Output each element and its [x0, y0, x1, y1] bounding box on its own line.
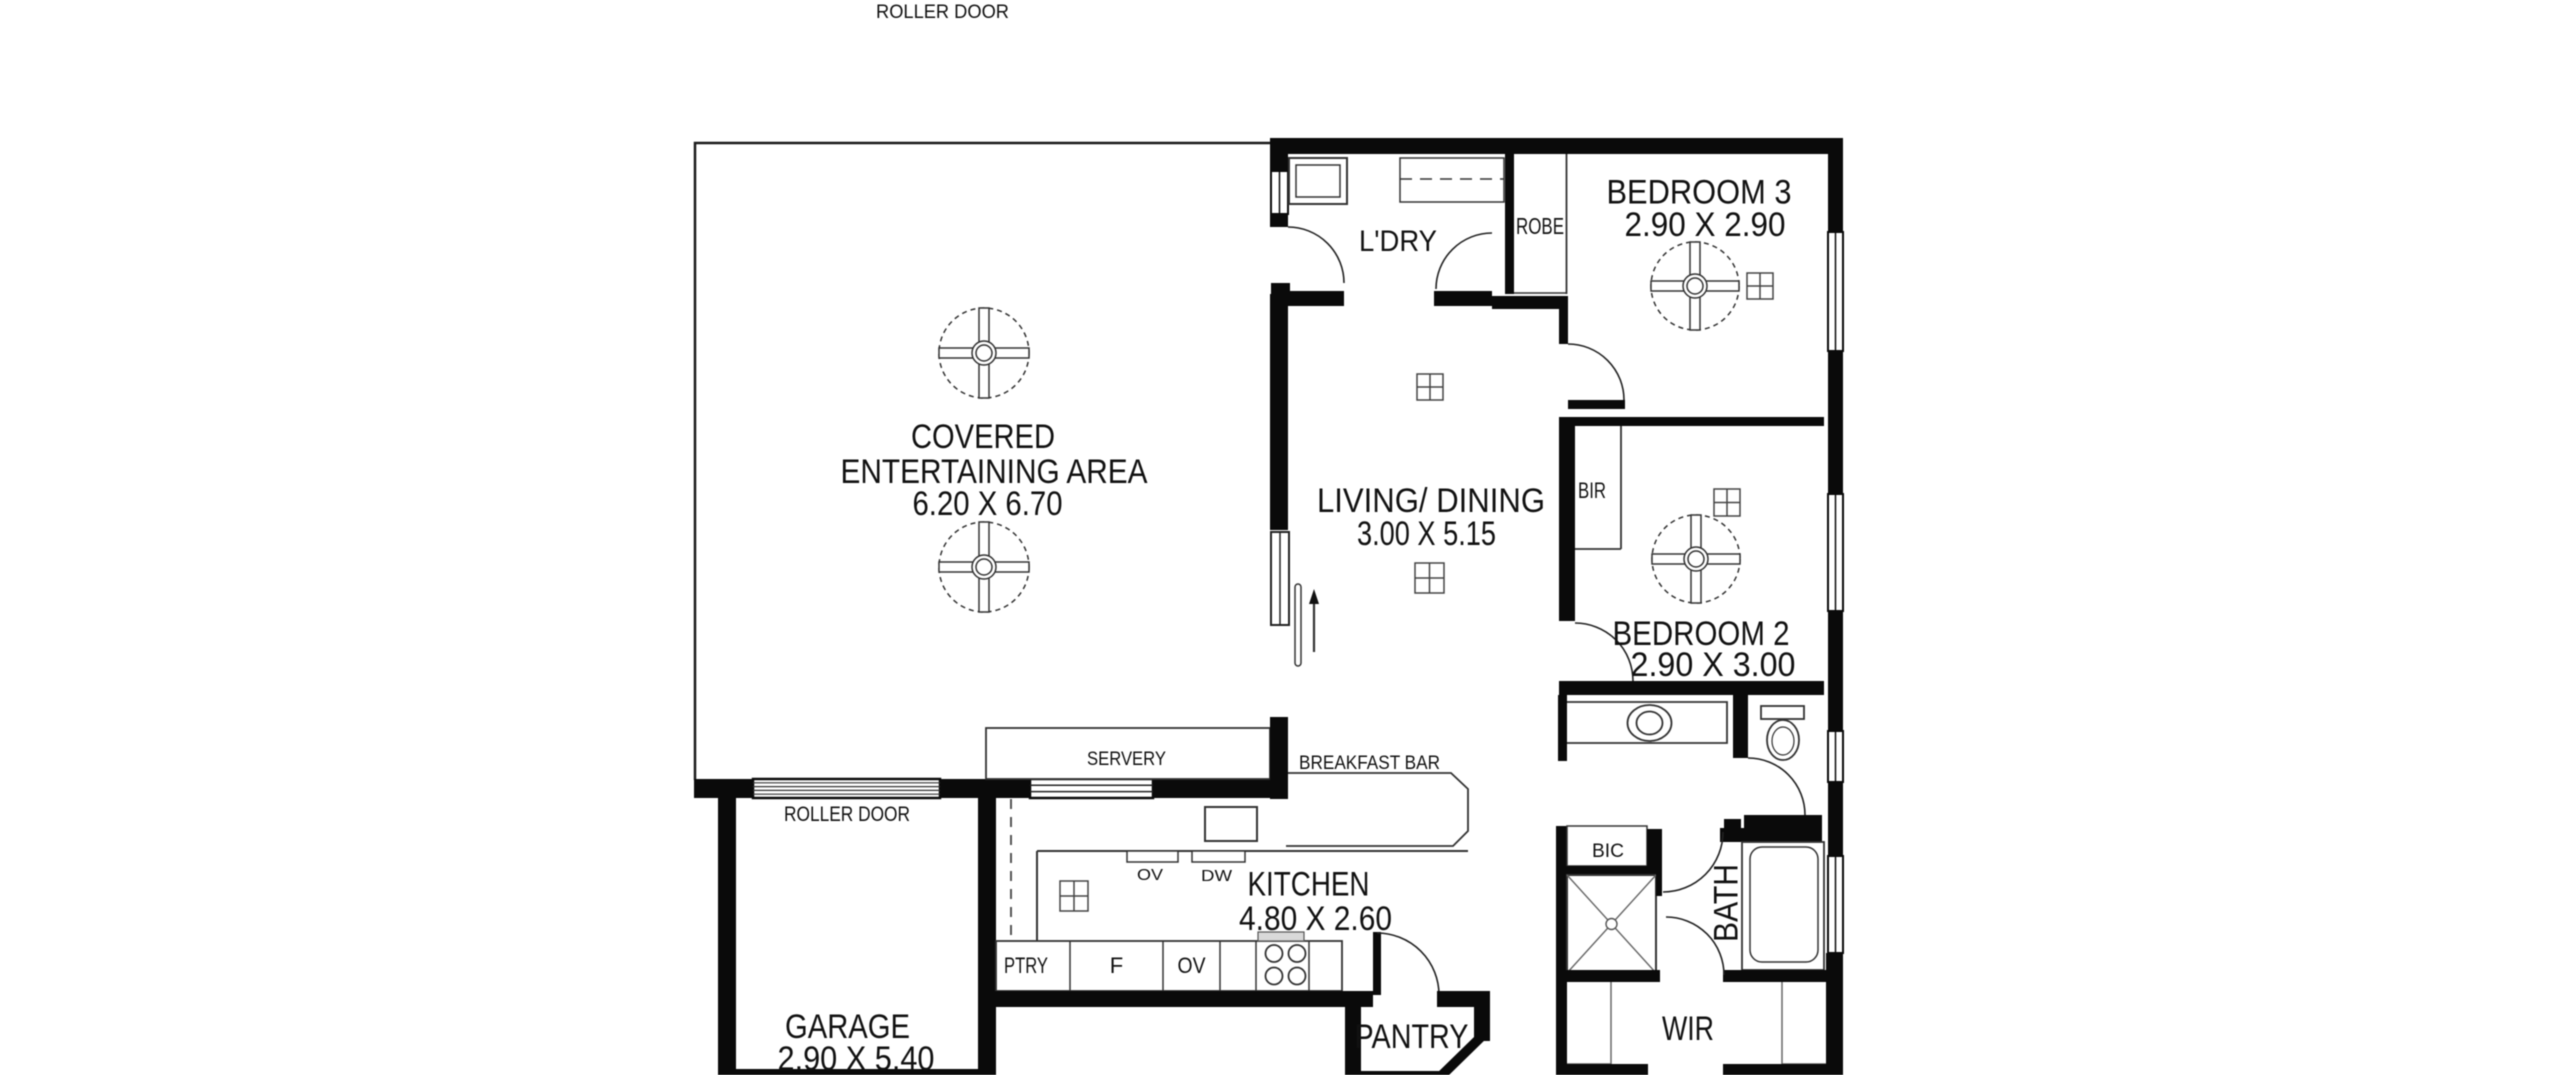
svg-text:2.90 X 3.00: 2.90 X 3.00 [1631, 646, 1796, 684]
svg-text:OV: OV [1178, 953, 1206, 978]
svg-text:OV: OV [1137, 867, 1163, 884]
svg-text:PANTRY: PANTRY [1355, 1018, 1469, 1056]
svg-text:BIC: BIC [1592, 841, 1624, 862]
svg-text:SERVERY: SERVERY [1087, 749, 1166, 770]
svg-text:ROLLER DOOR: ROLLER DOOR [784, 803, 910, 826]
svg-text:WIR: WIR [1662, 1010, 1714, 1048]
svg-text:BATH: BATH [1708, 864, 1746, 942]
svg-text:ROBE: ROBE [1516, 213, 1564, 239]
svg-text:PTRY: PTRY [1004, 953, 1048, 978]
svg-text:COVERED: COVERED [911, 418, 1055, 456]
svg-text:F: F [1110, 953, 1123, 978]
svg-text:BIR: BIR [1578, 478, 1606, 503]
svg-text:2.90 X 2.90: 2.90 X 2.90 [1625, 206, 1786, 244]
svg-text:3.00 X 5.15: 3.00 X 5.15 [1357, 515, 1496, 553]
svg-text:6.20 X 6.70: 6.20 X 6.70 [913, 485, 1063, 523]
svg-text:BREAKFAST BAR: BREAKFAST BAR [1299, 753, 1440, 774]
svg-text:KITCHEN: KITCHEN [1248, 866, 1370, 904]
svg-text:ROLLER DOOR: ROLLER DOOR [876, 2, 1009, 23]
svg-text:2.90 X 5.40: 2.90 X 5.40 [778, 1040, 935, 1075]
svg-text:L'DRY: L'DRY [1359, 225, 1437, 258]
svg-text:DW: DW [1201, 868, 1233, 885]
